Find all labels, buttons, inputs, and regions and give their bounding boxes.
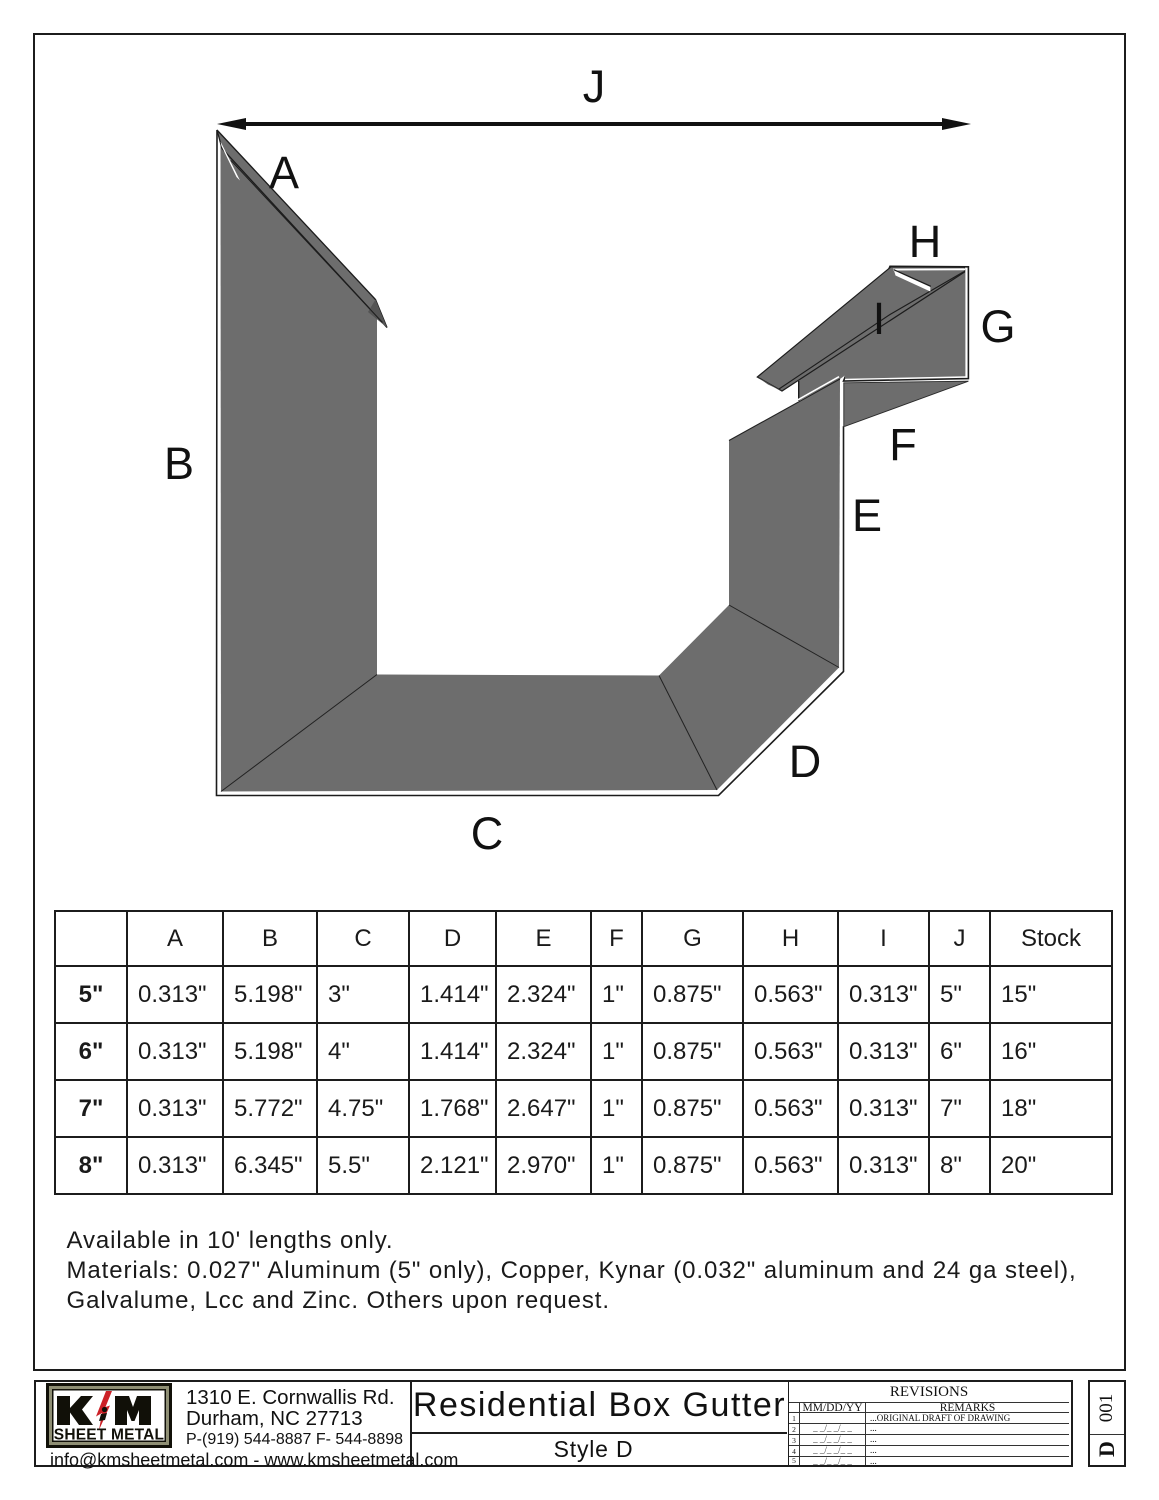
svg-text:C: C xyxy=(471,808,504,859)
svg-text:F: F xyxy=(889,419,917,470)
svg-text:H: H xyxy=(909,216,942,267)
svg-text:SHEET METAL: SHEET METAL xyxy=(54,1427,164,1444)
svg-text:I: I xyxy=(873,293,886,344)
svg-text:B: B xyxy=(164,438,194,489)
svg-text:A: A xyxy=(269,147,299,198)
svg-text:E: E xyxy=(852,490,882,541)
svg-text:G: G xyxy=(980,301,1015,352)
svg-text:D: D xyxy=(789,736,822,787)
svg-text:J: J xyxy=(583,61,606,112)
